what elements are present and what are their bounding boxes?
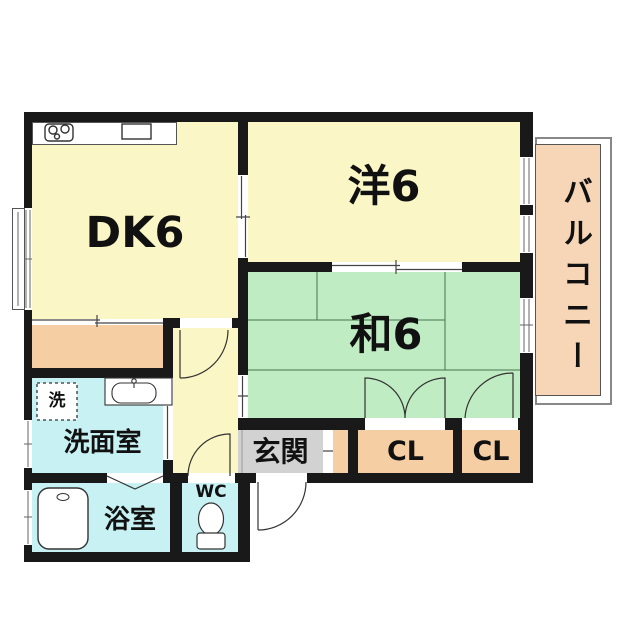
- slider-dk-storage: [32, 315, 163, 327]
- label-western-room: 洋6: [308, 166, 460, 209]
- label-japanese-room: 和6: [310, 314, 462, 357]
- toilet-icon: [197, 503, 225, 549]
- door-closet2: [465, 373, 513, 418]
- label-closet-1: CL: [358, 430, 453, 473]
- label-dk: DK6: [60, 212, 210, 255]
- label-washer-space: 洗: [37, 383, 77, 420]
- window-bathroom-left: [24, 491, 32, 544]
- label-entrance: 玄関: [238, 430, 323, 473]
- door-entrance: [258, 482, 306, 530]
- door-closet1: [365, 378, 445, 418]
- window-dk-left: [18, 210, 32, 308]
- window-japanese-balcony: [520, 299, 533, 352]
- door-wc: [188, 434, 230, 476]
- vanity-sink-icon: [105, 378, 172, 405]
- label-bathroom: 浴室: [60, 507, 200, 533]
- stove-icon: [45, 124, 73, 141]
- label-wc: WC: [183, 484, 239, 501]
- slider-hall-japanese: [238, 376, 248, 417]
- label-washroom: 洗面室: [32, 430, 173, 456]
- kitchen-sink-icon: [122, 124, 151, 139]
- door-bathroom-bifold: [107, 476, 163, 489]
- slider-western-japanese: [332, 260, 462, 274]
- slider-dk-western: [236, 176, 250, 257]
- door-dk-hallway: [180, 330, 228, 378]
- window-washroom-left: [24, 421, 32, 467]
- window-western-balcony: [524, 158, 529, 252]
- label-balcony: バルコニー: [551, 163, 589, 393]
- floor-plan: DK6 洋6 和6 玄関 CL CL 洗面室 浴室 WC 洗 バルコニー: [0, 0, 640, 640]
- label-closet-2: CL: [462, 430, 520, 473]
